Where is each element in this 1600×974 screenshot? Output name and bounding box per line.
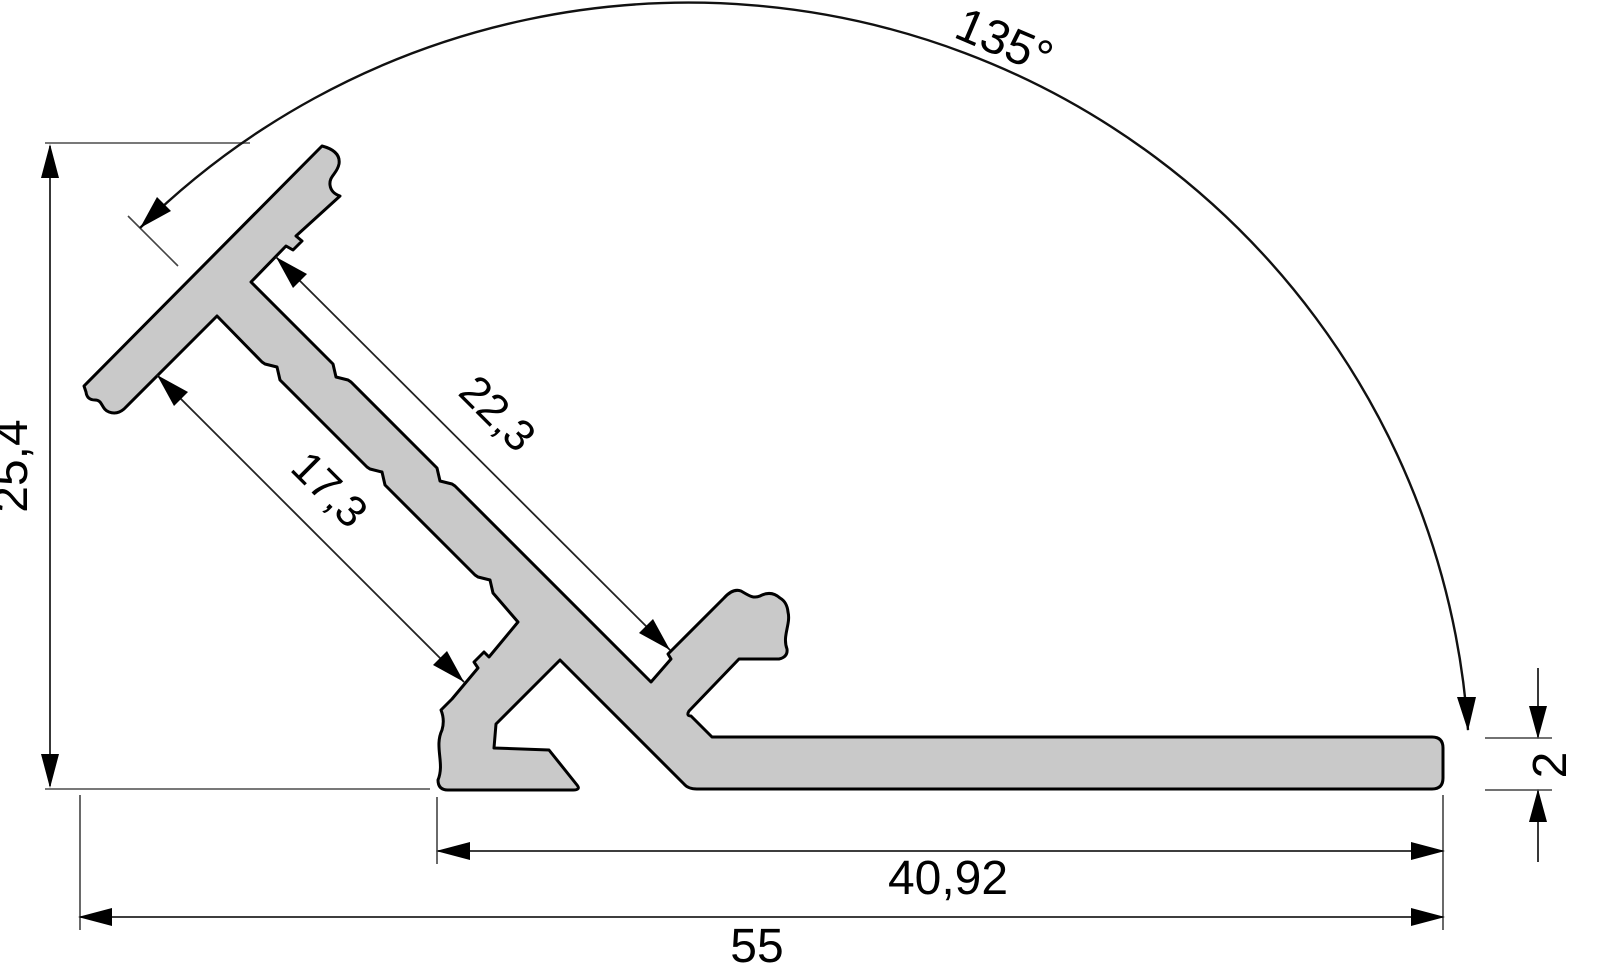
thickness-dim-label: 2: [1524, 752, 1577, 779]
base-width-arrow-right-icon: [1411, 842, 1445, 860]
overall-width-dim-label: 55: [730, 920, 783, 973]
base-width-arrow-left-icon: [436, 842, 470, 860]
profile-drawing-svg: 25,4 55 40,92 2 22,3: [0, 0, 1600, 974]
angle-arc: [140, 3, 1468, 730]
upper-wing-dim-line: [276, 257, 670, 650]
angle-dim-label: 135°: [948, 0, 1060, 86]
dimension-lower-wing: 17,3: [157, 375, 464, 682]
height-arrow-down-icon: [41, 754, 59, 788]
arc-radial-tick: [128, 216, 178, 266]
dimension-angle: 135°: [140, 0, 1476, 731]
profile-cross-section: [84, 146, 1443, 790]
profile-outline: [84, 146, 1443, 790]
angle-arrow-right-icon: [1457, 697, 1476, 731]
base-width-dim-label: 40,92: [888, 852, 1008, 905]
thickness-arrow-down-icon: [1529, 706, 1547, 739]
lower-wing-dim-line: [157, 375, 464, 682]
upper-wing-dim-label: 22,3: [450, 366, 545, 461]
dimension-overall-height: 25,4: [0, 144, 59, 788]
dimension-overall-width: 55: [78, 908, 1445, 973]
thickness-arrow-up-icon: [1529, 789, 1547, 822]
dimension-upper-wing: 22,3: [276, 257, 670, 650]
overall-width-arrow-left-icon: [78, 908, 112, 926]
height-arrow-up-icon: [41, 144, 59, 178]
dimension-base-thickness: 2: [1524, 668, 1577, 862]
height-dim-label: 25,4: [0, 419, 38, 512]
dimension-base-width: 40,92: [436, 842, 1445, 905]
overall-width-arrow-right-icon: [1411, 908, 1445, 926]
technical-drawing-canvas: 25,4 55 40,92 2 22,3: [0, 0, 1600, 974]
